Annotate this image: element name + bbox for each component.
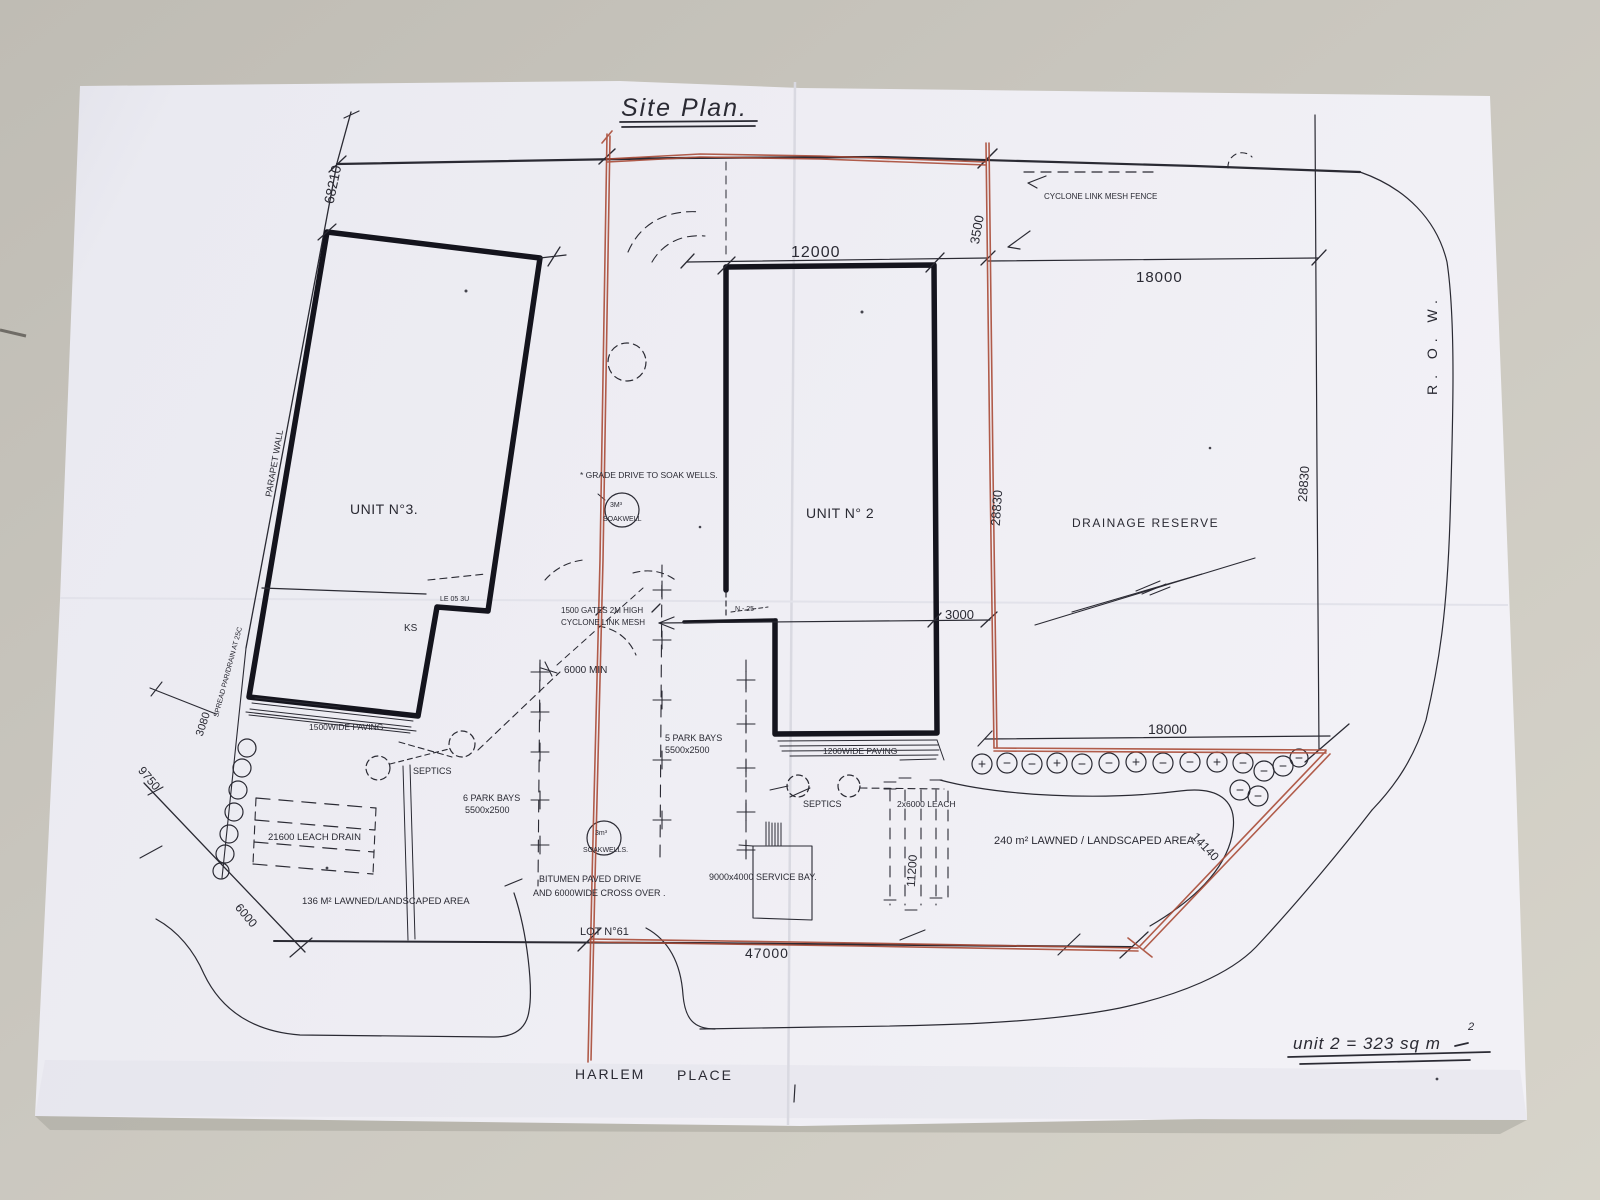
svg-text:KS: KS [404, 623, 418, 634]
svg-text:12000: 12000 [791, 244, 841, 261]
svg-text:2: 2 [1467, 1021, 1474, 1033]
svg-text:6000 MIN: 6000 MIN [564, 665, 607, 676]
svg-text:R. O. W.: R. O. W. [1424, 294, 1440, 395]
svg-text:unit 2 = 323 sq m: unit 2 = 323 sq m [1293, 1034, 1441, 1053]
svg-text:18000: 18000 [1136, 269, 1183, 286]
svg-text:LOT N°61: LOT N°61 [580, 926, 629, 938]
svg-text:UNIT N° 2: UNIT N° 2 [806, 505, 874, 521]
svg-text:21600 LEACH DRAIN: 21600 LEACH DRAIN [268, 832, 361, 843]
svg-text:28830: 28830 [1295, 465, 1312, 502]
svg-text:SEPTICS: SEPTICS [803, 799, 842, 809]
svg-text:1500 GATES 2M HIGH: 1500 GATES 2M HIGH [561, 606, 643, 615]
svg-text:3M³: 3M³ [610, 502, 623, 509]
svg-text:136 M² LAWNED/LANDSCAPED AREA: 136 M² LAWNED/LANDSCAPED AREA [302, 896, 470, 907]
svg-text:240 m² LAWNED / LANDSCAPED ARE: 240 m² LAWNED / LANDSCAPED AREA . [994, 835, 1200, 847]
svg-text:18000: 18000 [1148, 721, 1187, 737]
svg-text:47000: 47000 [745, 945, 789, 961]
svg-text:DRAINAGE RESERVE: DRAINAGE RESERVE [1072, 516, 1219, 530]
svg-text:1200WIDE PAVING: 1200WIDE PAVING [823, 746, 897, 756]
svg-text:CYCLONE LINK MESH FENCE: CYCLONE LINK MESH FENCE [1044, 192, 1157, 201]
svg-text:9000x4000 SERVICE BAY.: 9000x4000 SERVICE BAY. [709, 872, 817, 882]
svg-text:* GRADE DRIVE TO SOAK WELLS.: * GRADE DRIVE TO SOAK WELLS. [580, 470, 718, 480]
svg-text:Site Plan.: Site Plan. [621, 94, 748, 122]
svg-text:LE 05 3U: LE 05 3U [440, 596, 469, 603]
svg-text:3m³: 3m³ [595, 830, 608, 837]
svg-text:SOAKWELLS.: SOAKWELLS. [583, 847, 628, 854]
svg-text:BITUMEN PAVED DRIVE: BITUMEN PAVED DRIVE [539, 874, 641, 884]
svg-text:1500WIDE PAVING: 1500WIDE PAVING [309, 722, 383, 732]
svg-text:N - 25: N - 25 [735, 606, 754, 613]
svg-text:6 PARK BAYS: 6 PARK BAYS [463, 793, 520, 803]
svg-text:5500x2500: 5500x2500 [465, 805, 510, 815]
svg-text:AND 6000WIDE CROSS OVER .: AND 6000WIDE CROSS OVER . [533, 888, 666, 898]
svg-text:28830: 28830 [988, 489, 1005, 526]
svg-text:UNIT N°3.: UNIT N°3. [350, 501, 418, 517]
svg-text:3000: 3000 [945, 607, 974, 622]
svg-text:CYCLONE LINK MESH: CYCLONE LINK MESH [561, 618, 645, 627]
svg-text:5500x2500: 5500x2500 [665, 745, 710, 755]
svg-text:SOAKWELL: SOAKWELL [603, 516, 642, 523]
svg-text:5 PARK BAYS: 5 PARK BAYS [665, 733, 722, 743]
svg-text:2x6000 LEACH: 2x6000 LEACH [897, 799, 956, 809]
svg-text:HARLEM: HARLEM [575, 1066, 645, 1082]
svg-text:PLACE: PLACE [677, 1067, 733, 1083]
svg-text:SEPTICS: SEPTICS [413, 766, 452, 776]
svg-text:11200: 11200 [904, 854, 920, 888]
